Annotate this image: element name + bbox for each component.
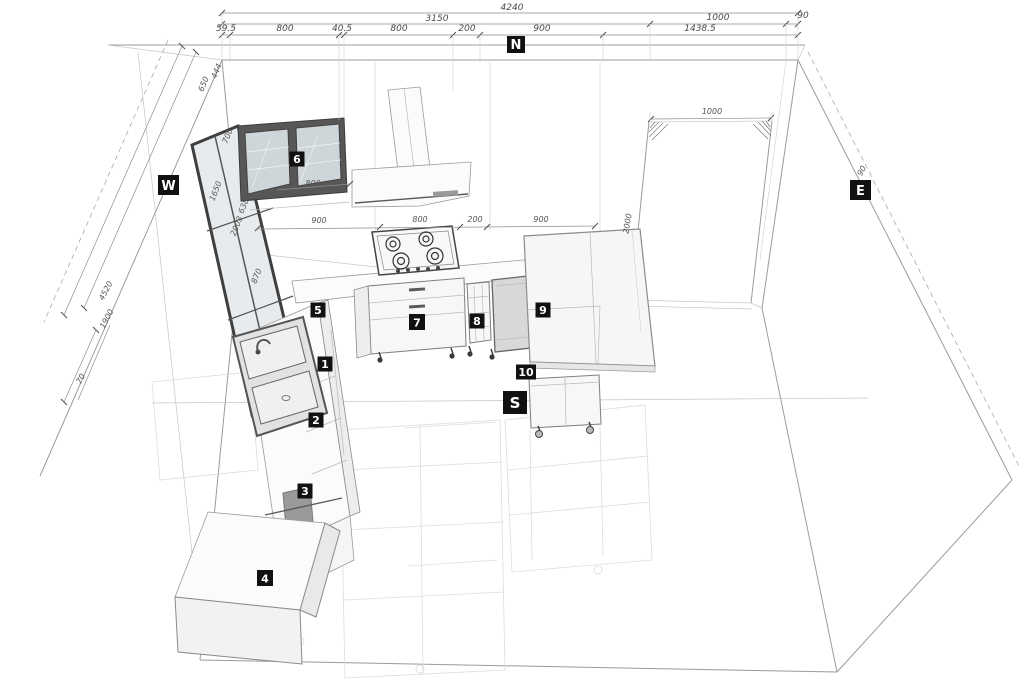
ne-corner — [762, 60, 798, 308]
dim-counter-4: 900 — [533, 215, 548, 224]
east-label: E — [856, 184, 865, 199]
west-wall-top-edge — [40, 60, 222, 476]
dim-seg-5: 200 — [458, 24, 475, 34]
hood-canopy — [352, 162, 471, 207]
kitchen-3d-drawing: 4240 3150 1000 90 59.5 800 40.5 800 200 … — [0, 0, 1020, 680]
ghost-box-center-lines — [342, 425, 504, 674]
item-3-label: 3 — [301, 485, 309, 498]
dim-seg-6: 900 — [533, 24, 550, 34]
west-margin-ticks — [61, 43, 199, 405]
item-5-label: 5 — [314, 304, 322, 317]
east-projection-dashed — [808, 52, 1020, 468]
dim-north-return: 90 — [797, 11, 809, 21]
arch-opening — [631, 61, 786, 309]
dim-seg-3: 40.5 — [332, 24, 352, 34]
drawer-cabinet-side — [354, 286, 371, 358]
west-label: W — [161, 179, 175, 194]
range-hood — [352, 87, 471, 207]
arch-header — [649, 121, 772, 122]
dim-wall-cabinet-width: 800 — [305, 179, 320, 188]
arch-dim-line — [651, 118, 771, 119]
dim-counter-3: 200 — [467, 215, 482, 224]
arch-right-jamb — [751, 121, 772, 303]
dim-north-left: 3150 — [426, 14, 449, 24]
dim-west-2: 444 — [210, 62, 224, 80]
east-wall-top-edge — [798, 60, 1012, 480]
cooktop — [372, 226, 459, 275]
dim-seg-4: 800 — [390, 24, 407, 34]
dim-seg-7: 1438.5 — [684, 24, 716, 34]
arch-corner-hatch-left — [649, 122, 668, 140]
item-8-label: 8 — [473, 315, 481, 328]
item-10-label: 10 — [518, 366, 534, 379]
arch-corner-hatch-right — [753, 121, 771, 139]
ne-ceiling-join — [798, 45, 805, 60]
ghost-verticals — [405, 422, 603, 566]
item-6-label: 6 — [293, 153, 301, 166]
ghost-box-right-lines — [508, 456, 650, 515]
item-4-label: 4 — [261, 573, 269, 586]
dim-counter-1: 900 — [311, 216, 326, 225]
north-wall-base-right — [751, 303, 762, 308]
dim-arch-width: 1000 — [702, 107, 722, 116]
west-margin-dim-lines — [64, 46, 196, 402]
dim-seg-2: 800 — [276, 24, 293, 34]
east-floor-edge — [762, 308, 837, 672]
ghost-box-right — [505, 405, 652, 572]
dim-west-9: 1900 — [98, 308, 116, 330]
north-label: N — [511, 38, 522, 53]
east-wall-closing-edge — [837, 480, 1012, 672]
island-countertop — [524, 229, 655, 366]
south-label: S — [510, 394, 521, 412]
wall-rail — [250, 202, 350, 210]
dim-north-opening: 1000 — [707, 13, 730, 23]
kitchen-drawing-canvas: 4240 3150 1000 90 59.5 800 40.5 800 200 … — [0, 0, 1020, 680]
ghost-box-left — [152, 372, 258, 480]
ghost-leg — [594, 566, 602, 574]
dim-total-width: 4240 — [501, 3, 524, 13]
dim-seg-1: 59.5 — [216, 24, 236, 34]
item-2-label: 2 — [312, 414, 320, 427]
item-1-label: 1 — [321, 358, 329, 371]
dim-counter-2: 800 — [412, 215, 427, 224]
wall-cabinet-door-left — [245, 129, 290, 194]
item-7-label: 7 — [413, 317, 421, 330]
dim-west-8: 4520 — [97, 280, 115, 302]
item-9-label: 9 — [539, 304, 547, 317]
tall-cabinet-top — [175, 512, 325, 610]
ceiling-corner-join — [108, 45, 222, 60]
end-cabinet — [492, 276, 531, 352]
